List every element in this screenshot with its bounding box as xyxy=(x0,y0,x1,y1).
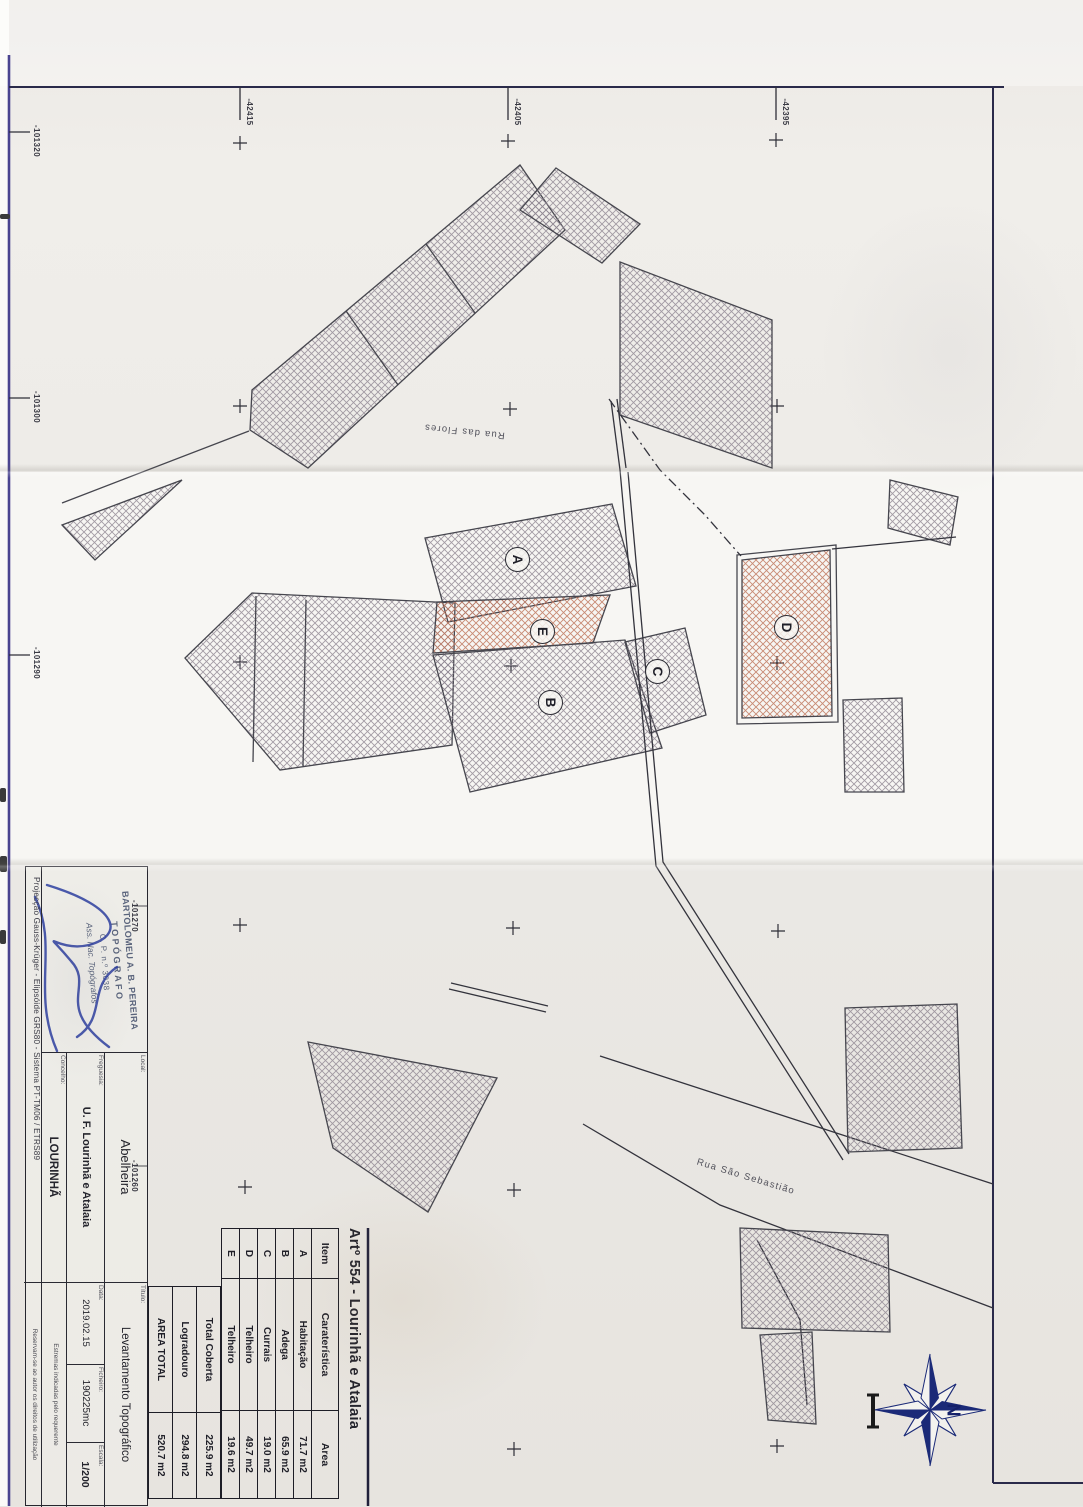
table-row: Logradouro 294.8 m2 xyxy=(173,1287,197,1499)
table-row: B Adega 65.9 m2 xyxy=(276,1229,294,1499)
cell-area: 71.7 m2 xyxy=(294,1411,312,1499)
hatched-parcel-southeast-a xyxy=(845,1004,962,1152)
field-freguesia-value: U. F. Lourinhã e Atalaia xyxy=(80,1052,92,1282)
compass-rose: N xyxy=(867,1354,986,1466)
summary-table: Total Coberta 225.9 m2 Logradouro 294.8 … xyxy=(148,1286,221,1499)
summary-label: Total Coberta xyxy=(197,1287,221,1413)
hatched-parcel-east-wedge xyxy=(888,480,958,545)
grid-coordinate-label-left: -101320 xyxy=(29,118,43,164)
field-freguesia: Freguesia: U. F. Lourinhã e Atalaia xyxy=(67,1052,105,1282)
grid-coordinate-label-left: -101300 xyxy=(29,384,43,430)
compass-cardinal-points xyxy=(874,1354,986,1466)
cell-area: 49.7 m2 xyxy=(240,1411,258,1499)
field-titulo: Título: Levantamento Topográfico xyxy=(105,1282,147,1507)
hatched-parcel-southeast-b xyxy=(740,1228,890,1332)
table-row: A Habitação 71.7 m2 xyxy=(294,1229,312,1499)
table-header-row: Item Caraterística Area xyxy=(312,1229,339,1499)
field-ficheiro-value: 190225mc xyxy=(80,1364,91,1442)
hatched-parcel-southeast-c xyxy=(760,1332,816,1424)
road-segment xyxy=(449,989,546,1012)
cell-item: C xyxy=(258,1229,276,1279)
field-concelho: Concelho: LOURINHÃ xyxy=(42,1052,67,1282)
note-line-2: Reservam-se ao autor os direitos de util… xyxy=(31,1282,38,1507)
scanned-survey-sheet: { "sheet": { "article_title": "Artº 554 … xyxy=(0,0,1083,1506)
hatched-parcel-southwest xyxy=(308,1042,497,1212)
cell-caracteristica: Telheiro xyxy=(240,1279,258,1411)
col-item: Item xyxy=(312,1229,339,1279)
grid-coordinate-label-top: -42415 xyxy=(243,90,256,134)
field-escala-value: 1/200 xyxy=(79,1442,91,1507)
field-escala-label: Escala: xyxy=(97,1445,104,1466)
projection-line: Projecção Gauss-Krüger - Elipsóide GRS80… xyxy=(32,877,41,1282)
road-segment xyxy=(451,983,548,1006)
building-label-d: D xyxy=(774,615,799,640)
grid-coordinate-label-left: -101270 xyxy=(127,893,141,939)
building-b-outline xyxy=(433,640,662,792)
cell-item: A xyxy=(294,1229,312,1279)
field-ficheiro-label: Ficheiro: xyxy=(97,1367,104,1392)
field-notes: Estremas indicadas pelo requerente Reser… xyxy=(24,1282,67,1507)
field-ficheiro: Ficheiro: 190225mc xyxy=(67,1364,105,1442)
cell-area: 65.9 m2 xyxy=(276,1411,294,1499)
building-label-a: A xyxy=(505,547,530,572)
field-concelho-value: LOURINHÃ xyxy=(47,1052,59,1282)
field-local-label: Local: xyxy=(139,1055,146,1072)
area-table-block: Artº 554 - Lourinhã e Atalaia Item Carat… xyxy=(148,1228,366,1506)
field-titulo-label: Título: xyxy=(139,1285,146,1303)
table-row: Total Coberta 225.9 m2 xyxy=(197,1287,221,1499)
cell-area: 19.6 m2 xyxy=(222,1411,240,1499)
cell-caracteristica: Habitação xyxy=(294,1279,312,1411)
grid-coordinate-label-left: -101290 xyxy=(29,640,43,686)
note-line-1: Estremas indicadas pelo requerente xyxy=(52,1282,59,1507)
cell-area: 19.0 m2 xyxy=(258,1411,276,1499)
cell-item: B xyxy=(276,1229,294,1279)
boundary-line-east xyxy=(832,537,956,549)
table-row: D Telheiro 49.7 m2 xyxy=(240,1229,258,1499)
cell-caracteristica: Adega xyxy=(276,1279,294,1411)
cell-item: E xyxy=(222,1229,240,1279)
compass-north-label: N xyxy=(943,1404,963,1417)
field-data-value: 2019.02.15 xyxy=(80,1282,91,1364)
grid-coordinate-label-top: -42395 xyxy=(779,90,792,134)
grid-coordinate-label-left: -101260 xyxy=(127,1153,141,1199)
building-label-e: E xyxy=(530,619,555,644)
hatched-parcel-west-triangle xyxy=(62,480,182,560)
summary-value: 294.8 m2 xyxy=(173,1413,197,1499)
field-freguesia-label: Freguesia: xyxy=(97,1055,104,1086)
field-escala: Escala: 1/200 xyxy=(67,1442,105,1507)
col-area: Area xyxy=(312,1411,339,1499)
summary-label: Logradouro xyxy=(173,1287,197,1413)
grid-coordinate-label-top: -42405 xyxy=(511,90,524,134)
area-table: Item Caraterística Area A Habitação 71.7… xyxy=(221,1228,339,1499)
cell-caracteristica: Currais xyxy=(258,1279,276,1411)
hatched-parcel-west-band xyxy=(185,593,455,770)
table-row: E Telheiro 19.6 m2 xyxy=(222,1229,240,1499)
hatched-parcel-east-small xyxy=(843,698,904,792)
col-caracteristica: Caraterística xyxy=(312,1279,339,1411)
table-row: AREA TOTAL 520.7 m2 xyxy=(149,1287,173,1499)
summary-value: 520.7 m2 xyxy=(149,1413,173,1499)
hatched-parcel-northeast xyxy=(620,262,772,468)
field-titulo-value: Levantamento Topográfico xyxy=(119,1282,131,1507)
cell-item: D xyxy=(240,1229,258,1279)
field-data-label: Data: xyxy=(97,1285,104,1301)
summary-label: AREA TOTAL xyxy=(149,1287,173,1413)
cell-caracteristica: Telheiro xyxy=(222,1279,240,1411)
summary-value: 225.9 m2 xyxy=(197,1413,221,1499)
building-label-c: C xyxy=(645,659,670,684)
building-label-b: B xyxy=(538,690,563,715)
field-data: Data: 2019.02.15 xyxy=(67,1282,105,1364)
field-concelho-label: Concelho: xyxy=(59,1055,66,1084)
article-title: Artº 554 - Lourinhã e Atalaia xyxy=(339,1228,366,1506)
compass-west-mark xyxy=(867,1395,879,1427)
table-row: C Currais 19.0 m2 xyxy=(258,1229,276,1499)
